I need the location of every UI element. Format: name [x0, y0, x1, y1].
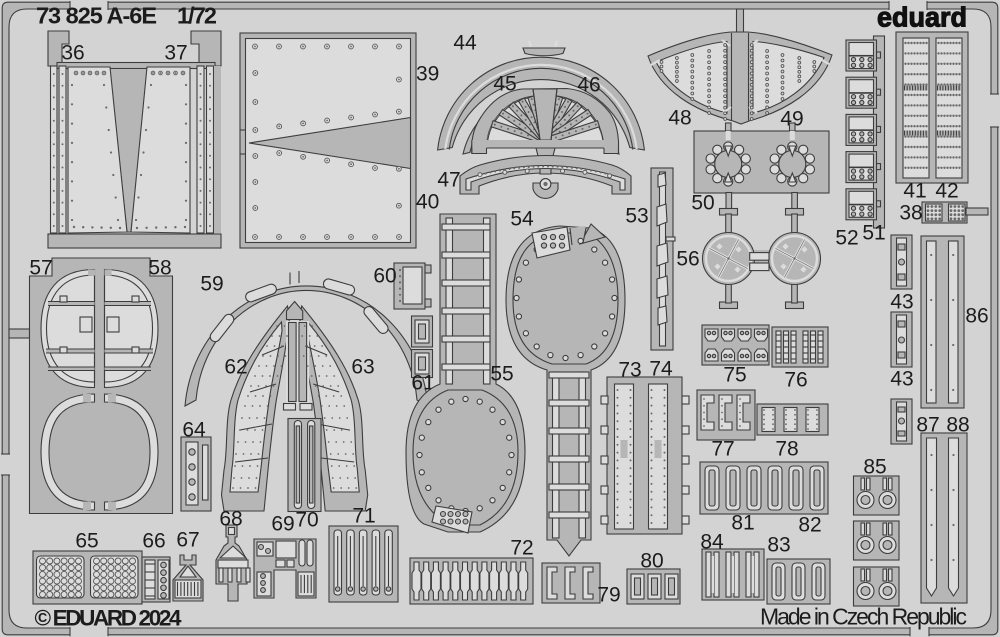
svg-text:72: 72 — [510, 537, 533, 560]
svg-text:40: 40 — [416, 191, 439, 214]
svg-text:42: 42 — [935, 180, 958, 203]
svg-text:1/72: 1/72 — [177, 3, 217, 29]
svg-text:82: 82 — [798, 514, 821, 537]
svg-text:87: 87 — [916, 414, 939, 437]
svg-text:68: 68 — [219, 508, 242, 531]
svg-text:44: 44 — [453, 32, 477, 55]
svg-text:© EDUARD 2024: © EDUARD 2024 — [35, 606, 182, 631]
svg-text:43: 43 — [890, 368, 913, 391]
svg-text:63: 63 — [351, 356, 374, 379]
svg-text:43: 43 — [890, 291, 913, 314]
svg-text:eduard: eduard — [877, 2, 967, 33]
svg-text:70: 70 — [295, 509, 318, 532]
svg-text:48: 48 — [668, 107, 691, 130]
svg-text:67: 67 — [176, 529, 199, 552]
svg-text:66: 66 — [142, 530, 165, 553]
svg-text:76: 76 — [784, 369, 807, 392]
svg-text:74: 74 — [649, 358, 673, 381]
svg-text:85: 85 — [863, 456, 886, 479]
svg-text:73: 73 — [618, 359, 641, 382]
svg-text:79: 79 — [597, 584, 620, 607]
svg-text:77: 77 — [711, 438, 734, 461]
svg-text:64: 64 — [182, 419, 206, 442]
svg-text:39: 39 — [416, 63, 439, 86]
svg-text:53: 53 — [625, 205, 648, 228]
svg-text:45: 45 — [493, 73, 516, 96]
svg-text:47: 47 — [437, 169, 460, 192]
svg-text:62: 62 — [224, 356, 247, 379]
svg-text:60: 60 — [373, 265, 396, 288]
svg-text:75: 75 — [723, 364, 746, 387]
svg-text:84: 84 — [700, 531, 724, 554]
svg-text:78: 78 — [775, 438, 798, 461]
svg-text:41: 41 — [903, 180, 926, 203]
svg-text:65: 65 — [75, 530, 98, 553]
svg-text:71: 71 — [352, 505, 375, 528]
svg-text:80: 80 — [640, 550, 663, 573]
svg-text:58: 58 — [148, 257, 171, 280]
svg-text:56: 56 — [676, 248, 699, 271]
svg-text:59: 59 — [200, 273, 223, 296]
svg-text:88: 88 — [946, 414, 969, 437]
svg-text:57: 57 — [29, 257, 52, 280]
svg-text:36: 36 — [61, 42, 84, 65]
svg-text:51: 51 — [862, 222, 885, 245]
svg-text:37: 37 — [164, 42, 187, 65]
svg-text:52: 52 — [835, 227, 858, 250]
svg-text:38: 38 — [899, 202, 922, 225]
svg-text:83: 83 — [767, 534, 790, 557]
svg-text:69: 69 — [271, 513, 294, 536]
svg-text:81: 81 — [731, 512, 754, 535]
svg-text:86: 86 — [965, 305, 988, 328]
svg-text:50: 50 — [691, 192, 714, 215]
svg-text:55: 55 — [490, 363, 513, 386]
svg-text:73 825 A-6E: 73 825 A-6E — [36, 3, 157, 29]
svg-text:Made in Czech Republic: Made in Czech Republic — [760, 604, 967, 630]
svg-text:54: 54 — [510, 208, 534, 231]
svg-text:46: 46 — [577, 74, 600, 97]
